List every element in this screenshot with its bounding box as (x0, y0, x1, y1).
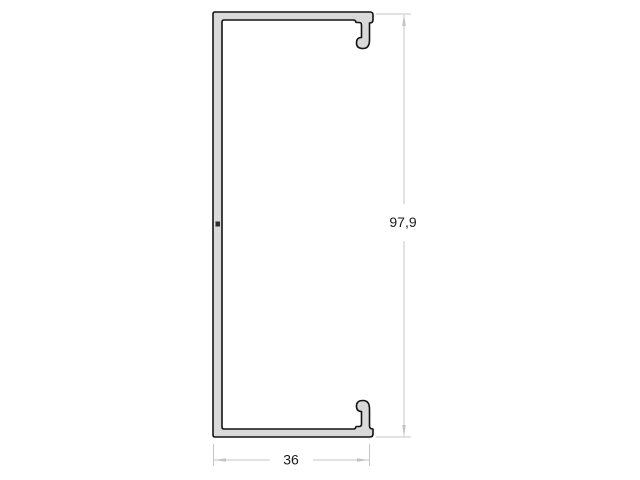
drawing-canvas: 97,9 36 (0, 0, 640, 480)
arrow-right-icon (357, 458, 369, 462)
height-dimension: 97,9 (376, 14, 417, 437)
channel-profile-shape (213, 12, 373, 437)
height-dimension-label: 97,9 (389, 214, 416, 230)
arrow-left-icon (214, 458, 226, 462)
wall-center-mark (216, 222, 221, 227)
width-dimension-label: 36 (283, 452, 299, 468)
profile-drawing-svg: 97,9 36 (0, 0, 640, 480)
arrow-down-icon (402, 425, 406, 437)
arrow-up-icon (402, 14, 406, 26)
width-dimension: 36 (214, 444, 370, 468)
